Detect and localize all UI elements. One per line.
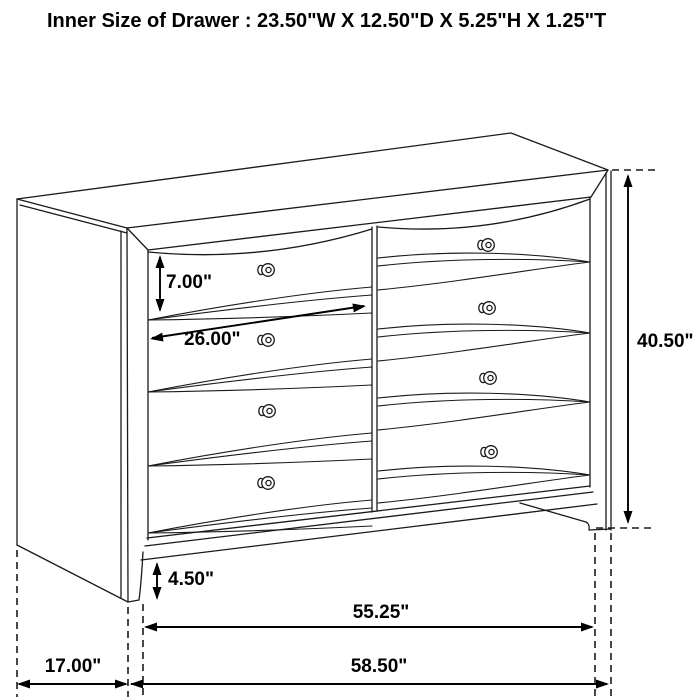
dimension-annotations: 7.00" 26.00" 40.50" 4.50" — [17, 174, 694, 689]
drawer-knob — [479, 302, 496, 315]
drawer-knob — [258, 477, 275, 490]
dim-drawer-front-height: 7.00" — [156, 255, 213, 312]
dim-base-height: 4.50" — [153, 562, 215, 600]
dim-inner-width: 55.25" — [144, 602, 594, 632]
drawer-knob — [481, 446, 498, 459]
dresser-drawing — [17, 133, 611, 602]
dim-overall-width-label: 58.50" — [351, 656, 408, 677]
drawer-knob — [478, 239, 495, 252]
drawer-knob — [480, 372, 497, 385]
drawer-top-curves — [148, 199, 590, 255]
dim-overall-height: 40.50" — [624, 174, 694, 524]
dim-base-height-label: 4.50" — [168, 569, 214, 590]
drawer-carving-left — [148, 287, 372, 533]
dresser-side-panel — [17, 199, 128, 602]
dim-depth: 17.00" — [17, 656, 128, 689]
dim-inner-width-label: 55.25" — [353, 602, 410, 623]
dashed-guides — [17, 170, 656, 697]
drawer-knob — [258, 264, 275, 277]
dim-drawer-front-height-label: 7.00" — [166, 272, 212, 293]
dresser-dimension-diagram: 7.00" 26.00" 40.50" 4.50" — [0, 0, 700, 700]
dresser-front-frame — [148, 171, 611, 540]
dresser-top — [17, 133, 608, 250]
dim-overall-width: 58.50" — [130, 656, 609, 689]
dim-overall-height-label: 40.50" — [637, 331, 694, 352]
diagram-canvas: Inner Size of Drawer : 23.50"W X 12.50"D… — [0, 0, 700, 700]
drawer-knob — [258, 334, 275, 347]
drawer-knob — [259, 405, 276, 418]
dim-drawer-width-label: 26.00" — [184, 329, 241, 350]
dim-depth-label: 17.00" — [45, 656, 102, 677]
